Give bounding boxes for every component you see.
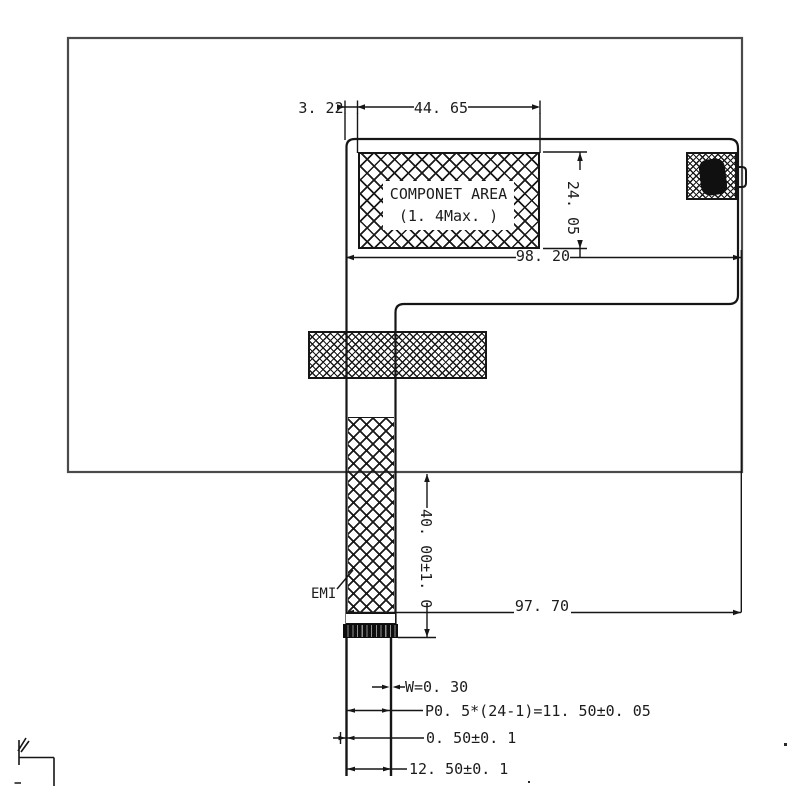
dim-contact-pitch: P0. 5*(24-1)=11. 50±0. 05 xyxy=(425,702,651,720)
tail-contact-edges xyxy=(347,638,392,776)
component-area-label: COMPONET AREA (1. 4Max. ) xyxy=(383,181,514,230)
speck xyxy=(528,781,530,783)
emi-shield-hatch xyxy=(348,417,395,613)
dim-fpc-length: 40. 00±1. 0 xyxy=(417,509,435,603)
dim-overall-width-top: 98. 20 xyxy=(516,247,570,265)
drawing-linework xyxy=(0,0,800,800)
dim-tail-width: 12. 50±0. 1 xyxy=(409,760,508,778)
module-outline xyxy=(68,38,742,472)
technical-drawing-canvas: COMPONET AREA (1. 4Max. ) 3. 22 44. 65 2… xyxy=(0,0,800,800)
dim-contact-width: W=0. 30 xyxy=(405,678,468,696)
sheet-corner-mark xyxy=(15,738,55,786)
emi-label: EMI xyxy=(311,586,336,602)
dim-edge-margin: 0. 50±0. 1 xyxy=(426,729,516,747)
connector-band xyxy=(346,613,395,624)
dim-offset-left: 3. 22 xyxy=(298,99,343,117)
dim-component-width: 44. 65 xyxy=(414,99,468,117)
component-area-title: COMPONET AREA xyxy=(390,184,507,205)
speck xyxy=(784,743,787,746)
component-area-note: (1. 4Max. ) xyxy=(399,206,498,227)
dim-overall-width-bottom: 97. 70 xyxy=(515,597,569,615)
corner-component-dark-fill xyxy=(698,158,728,197)
connector-contact-strip xyxy=(343,624,398,638)
dim-component-height: 24. 05 xyxy=(564,178,582,238)
corner-component-hatch xyxy=(686,152,737,200)
stiffener-bar-hatch xyxy=(308,331,487,379)
